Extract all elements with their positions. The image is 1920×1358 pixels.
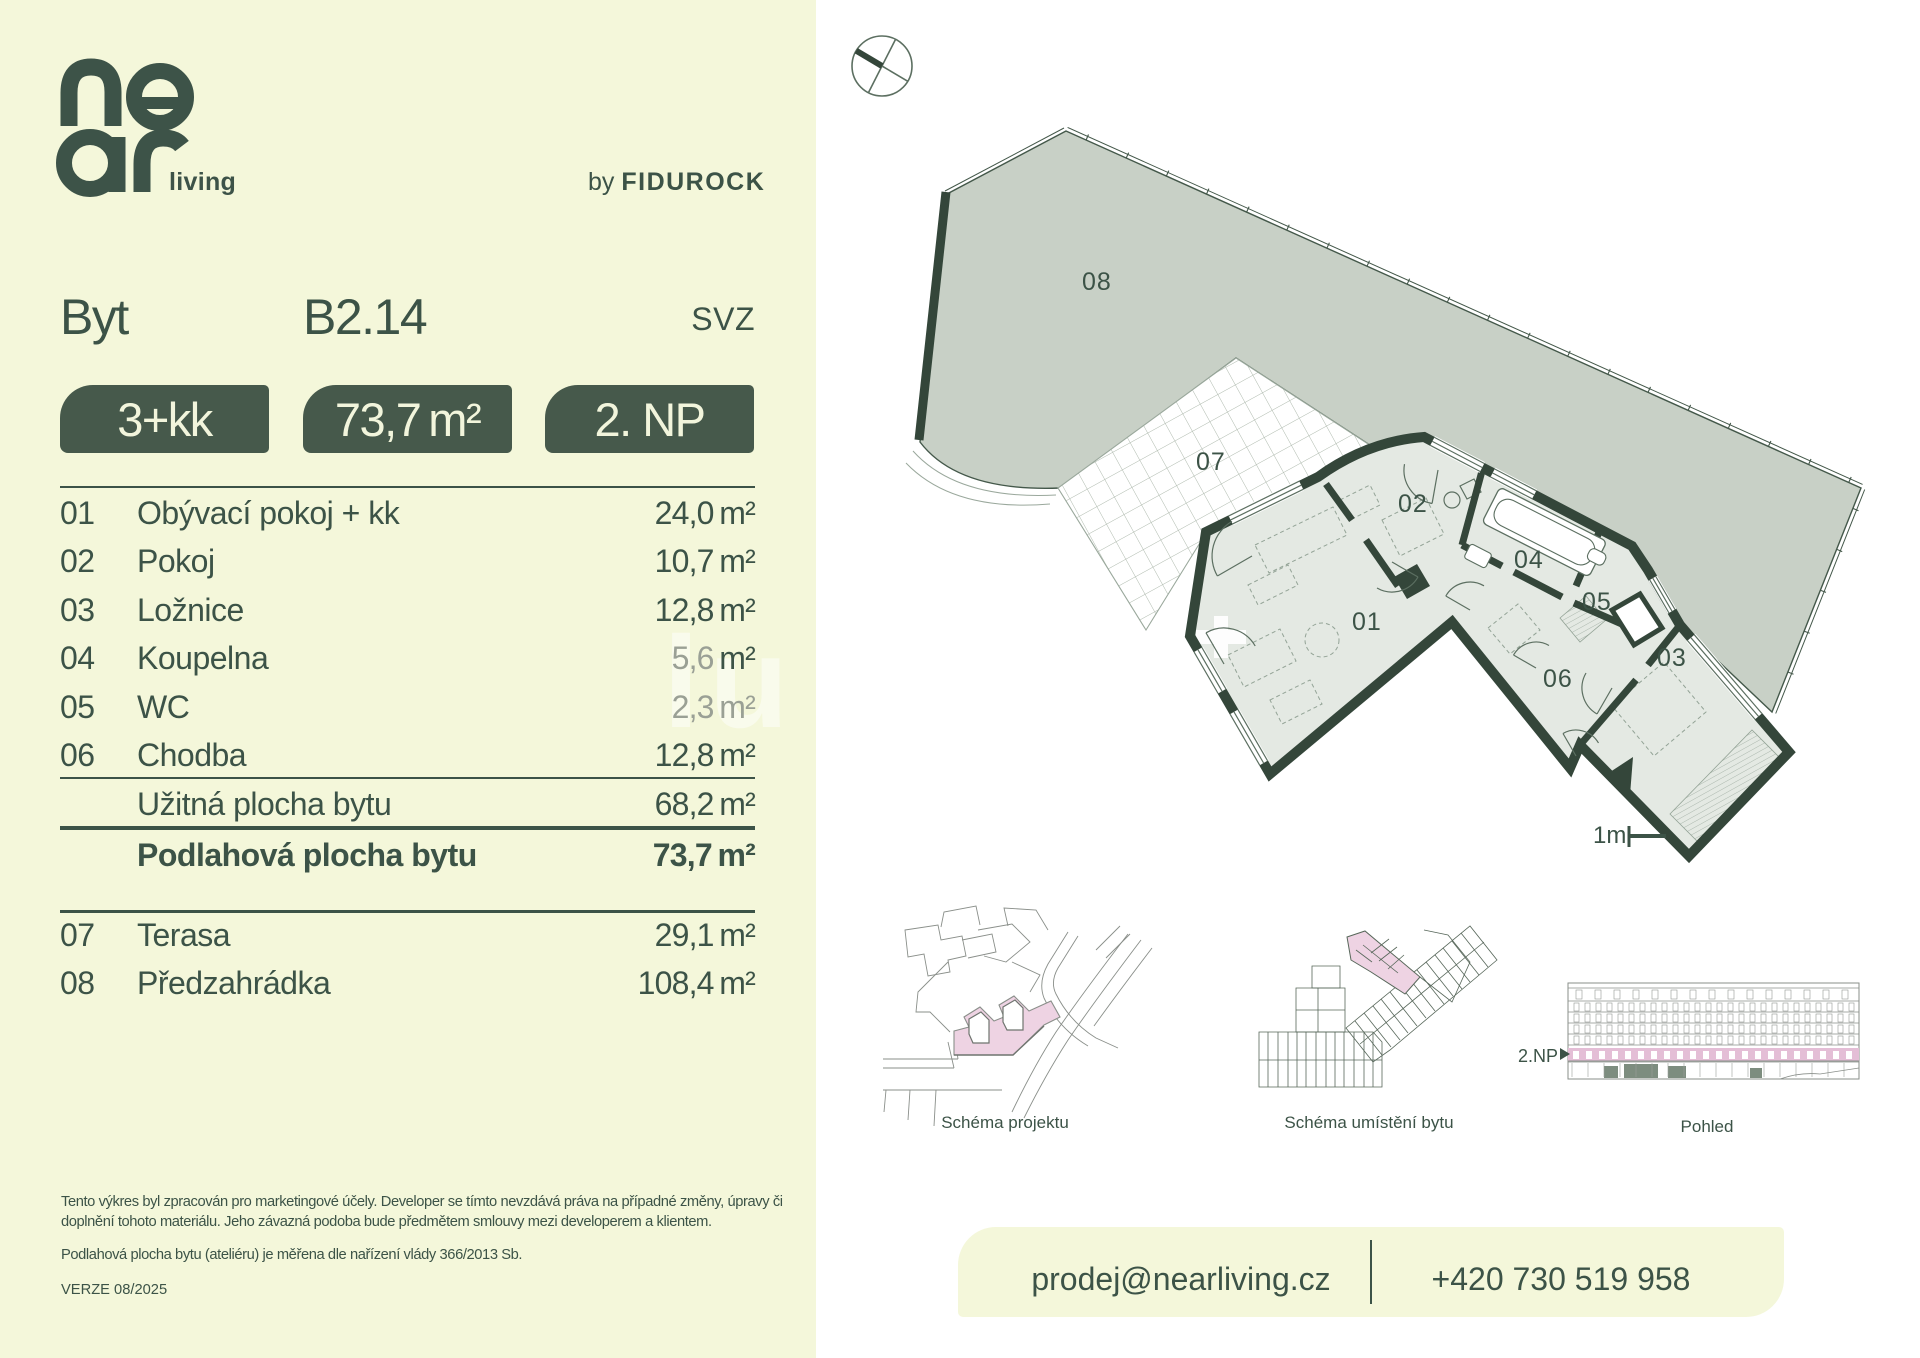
svg-text:01: 01 bbox=[1352, 608, 1382, 636]
svg-text:02: 02 bbox=[1398, 490, 1428, 518]
svg-text:05: 05 bbox=[1582, 588, 1612, 616]
svg-text:03: 03 bbox=[1657, 644, 1687, 672]
svg-text:04: 04 bbox=[1514, 546, 1544, 574]
svg-text:1m: 1m bbox=[1593, 822, 1626, 849]
svg-text:07: 07 bbox=[1196, 448, 1226, 476]
svg-text:2.NP: 2.NP bbox=[1518, 1046, 1558, 1066]
svg-text:06: 06 bbox=[1543, 665, 1573, 693]
svg-text:08: 08 bbox=[1082, 268, 1112, 296]
